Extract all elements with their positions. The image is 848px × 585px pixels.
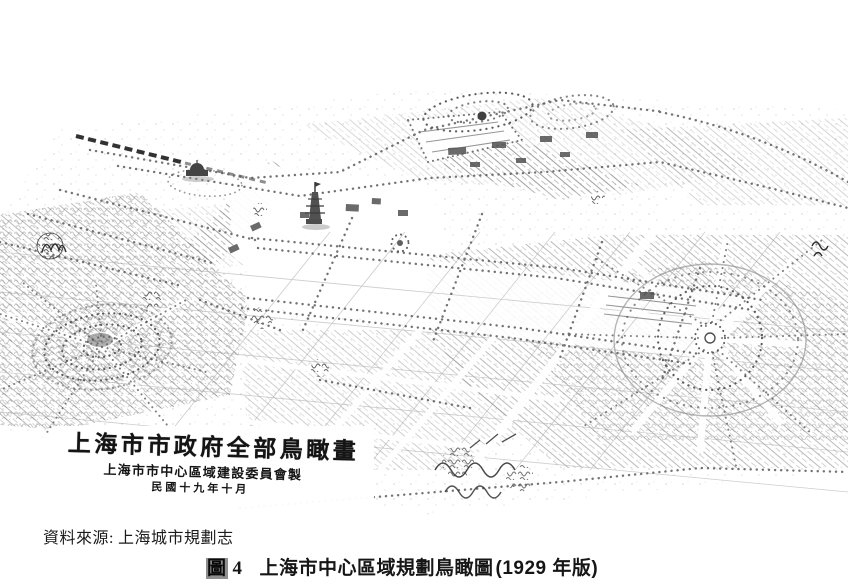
stadium-rotunda [478, 112, 487, 121]
figure-number: 4 [233, 558, 243, 579]
figure-label: 圖 [206, 558, 228, 579]
source-label: 資料來源: [43, 530, 114, 547]
drawing-inscription: 上海市市政府全部鳥瞰畫 上海市市中心區域建設委員會製 民國十九年十月 [59, 432, 367, 500]
source-note: 資料來源:上海城市規劃志 [43, 524, 233, 548]
figure-caption: 圖4上海市中心區域規劃鳥瞰圖(1929 年版) [206, 553, 598, 580]
source-value: 上海城市規劃志 [118, 530, 234, 547]
birdseye-drawing: 上海市市政府全部鳥瞰畫 上海市市中心區域建設委員會製 民國十九年十月 [0, 0, 848, 522]
figure-edition: (1929 年版) [496, 558, 599, 579]
figure-title: 上海市中心區域規劃鳥瞰圖 [260, 558, 494, 579]
scanned-document-page: 上海市市政府全部鳥瞰畫 上海市市中心區域建設委員會製 民國十九年十月 資料來源:… [0, 0, 848, 585]
oval-plaza-core [87, 333, 113, 347]
